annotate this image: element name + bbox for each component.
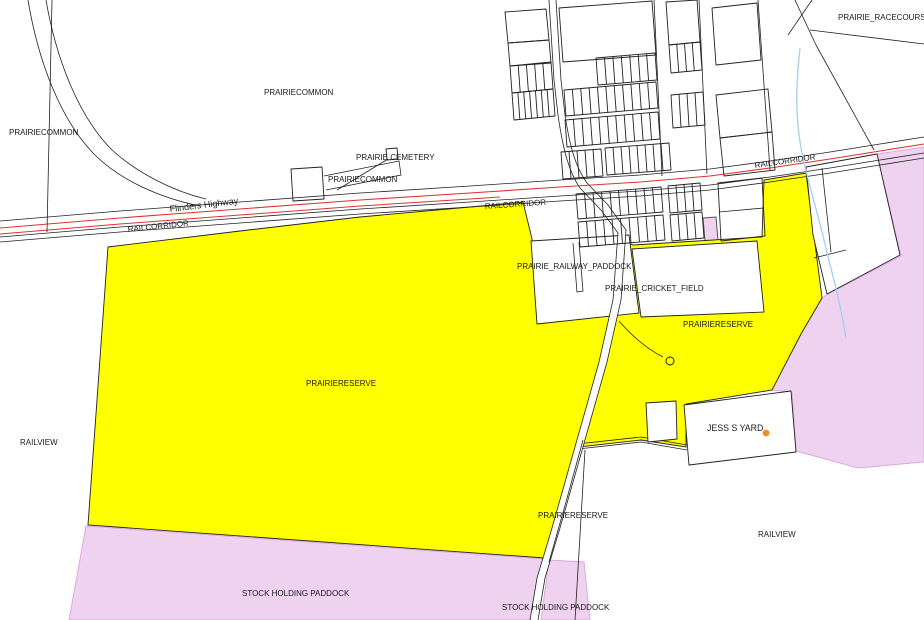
label-prairiereserve-south: PRAIRIERESERVE (538, 511, 608, 520)
small-yard-parcel (646, 401, 677, 442)
label-prairiecommon-left: PRAIRIECOMMON (9, 128, 79, 137)
label-railview-southeast: RAILVIEW (758, 530, 796, 539)
prairie-cricket-field-parcel (632, 241, 764, 317)
label-stock-holding-paddock-right: STOCK HOLDING PADDOCK (502, 603, 610, 612)
label-prairie-cemetery: PRAIRIE CEMETERY (356, 153, 435, 162)
label-prairiereserve-main: PRAIRIERESERVE (306, 379, 376, 388)
label-prairiecommon-mid: PRAIRIECOMMON (328, 175, 398, 184)
map-viewport: PRAIRIE_RACECOURSE PRAIRIECOMMON PRAIRIE… (0, 0, 924, 620)
label-jess-s-yard: JESS S YARD (707, 423, 763, 433)
label-railview-west: RAILVIEW (20, 438, 58, 447)
label-prairie-cricket-field: PRAIRIE_CRICKET_FIELD (605, 284, 704, 293)
pink-town-lot (703, 217, 718, 241)
poi-marker (763, 430, 770, 437)
label-prairiereserve-east: PRAIRIERESERVE (683, 320, 753, 329)
label-prairie-racecourse: PRAIRIE_RACECOURSE (838, 13, 924, 22)
label-stock-holding-paddock-left: STOCK HOLDING PADDOCK (242, 589, 350, 598)
map-canvas[interactable]: PRAIRIE_RACECOURSE PRAIRIECOMMON PRAIRIE… (0, 0, 924, 620)
label-prairiecommon-top: PRAIRIECOMMON (264, 88, 334, 97)
label-prairie-railway-paddock: PRAIRIE_RAILWAY_PADDOCK (517, 262, 632, 271)
